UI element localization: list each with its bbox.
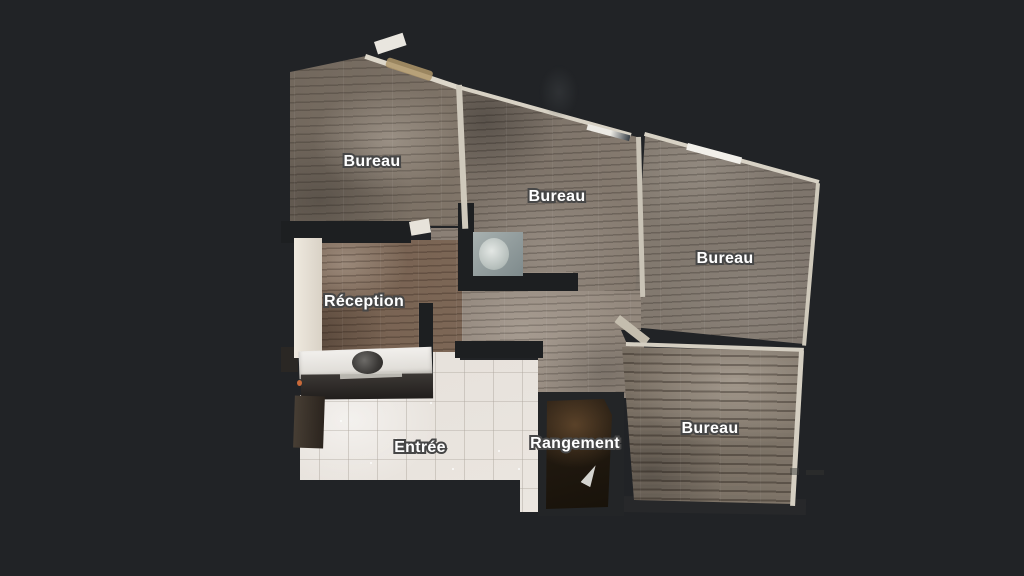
window-sill — [374, 33, 407, 55]
room-label-bureau-bottom-right: Bureau — [682, 420, 739, 438]
room-label-bureau-center: Bureau — [529, 188, 586, 206]
door-leaf — [409, 219, 431, 236]
wall-segment — [455, 341, 543, 358]
cabinet — [293, 395, 325, 448]
scan-artifact — [790, 468, 799, 475]
wall-edge-highlight — [294, 238, 322, 358]
room-label-entree: Entrée — [394, 439, 446, 457]
room-label-rangement: Rangement — [530, 435, 620, 453]
small-orange-object — [297, 380, 302, 386]
wc-fixture — [479, 238, 509, 270]
floorplan-canvas[interactable]: Bureau Bureau Bureau Réception Entrée Ra… — [0, 0, 1024, 576]
room-label-bureau-right: Bureau — [697, 250, 754, 268]
room-label-bureau-top-left: Bureau — [344, 153, 401, 171]
tile-reflections — [340, 420, 342, 422]
scan-artifact — [806, 470, 824, 475]
desk-fan — [352, 351, 383, 374]
room-label-reception: Réception — [324, 293, 404, 311]
scan-artifact — [540, 66, 578, 118]
